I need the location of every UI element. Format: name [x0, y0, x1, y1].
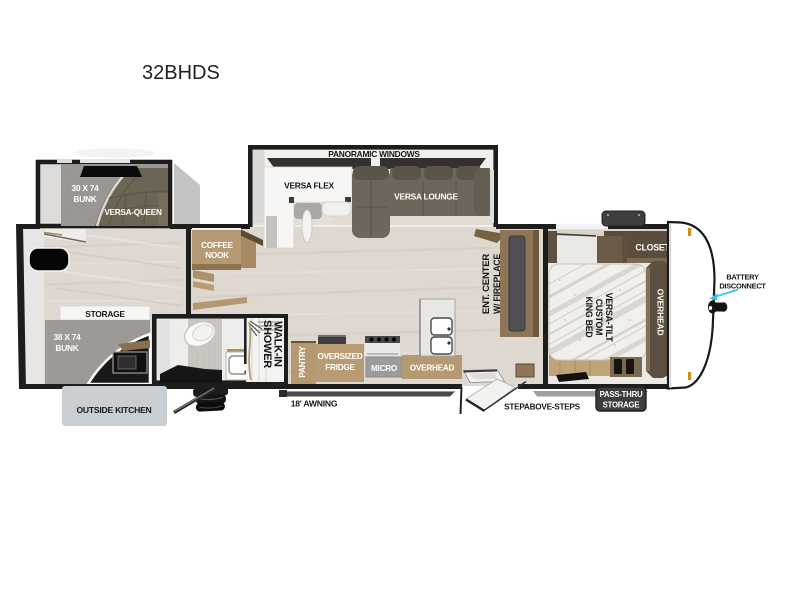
svg-text:W/ FIREPLACE: W/ FIREPLACE [492, 254, 502, 314]
svg-text:COFFEE: COFFEE [201, 241, 233, 250]
svg-text:ENT. CENTER: ENT. CENTER [481, 254, 492, 314]
svg-text:STORAGE: STORAGE [85, 309, 125, 319]
svg-text:OVERHEAD: OVERHEAD [656, 289, 666, 336]
svg-text:STORAGE: STORAGE [603, 401, 640, 410]
svg-text:MICRO: MICRO [371, 364, 398, 373]
svg-text:NOOK: NOOK [205, 251, 229, 260]
svg-text:VERSA-TILT: VERSA-TILT [604, 293, 614, 343]
svg-text:PANORAMIC WINDOWS: PANORAMIC WINDOWS [328, 149, 420, 159]
svg-text:STEPABOVE-STEPS: STEPABOVE-STEPS [504, 403, 581, 412]
svg-text:32BHDS: 32BHDS [142, 62, 220, 84]
svg-text:DISCONNECT: DISCONNECT [719, 282, 766, 291]
svg-text:PASS-THRU: PASS-THRU [600, 390, 643, 399]
svg-text:18' AWNING: 18' AWNING [291, 399, 338, 409]
svg-text:KING BED: KING BED [584, 296, 594, 337]
svg-text:BUNK: BUNK [55, 343, 78, 353]
svg-text:CUSTOM: CUSTOM [594, 299, 604, 335]
svg-text:PANTRY: PANTRY [298, 346, 307, 378]
svg-text:BUNK: BUNK [73, 194, 96, 204]
svg-text:38 X 74: 38 X 74 [53, 332, 81, 342]
svg-text:OUTSIDE KITCHEN: OUTSIDE KITCHEN [76, 405, 151, 415]
svg-text:OVERSIZED: OVERSIZED [317, 352, 362, 361]
svg-text:VERSA FLEX: VERSA FLEX [284, 181, 334, 191]
svg-text:30 X 74: 30 X 74 [71, 183, 99, 193]
svg-text:VERSA LOUNGE: VERSA LOUNGE [394, 192, 458, 202]
svg-text:VERSA-QUEEN: VERSA-QUEEN [104, 208, 162, 217]
svg-text:OVERHEAD: OVERHEAD [410, 364, 455, 373]
svg-text:BATTERY: BATTERY [726, 273, 759, 282]
svg-text:CLOSET: CLOSET [635, 243, 670, 253]
svg-text:SHOWER: SHOWER [261, 320, 273, 368]
svg-text:FRIDGE: FRIDGE [325, 363, 355, 372]
